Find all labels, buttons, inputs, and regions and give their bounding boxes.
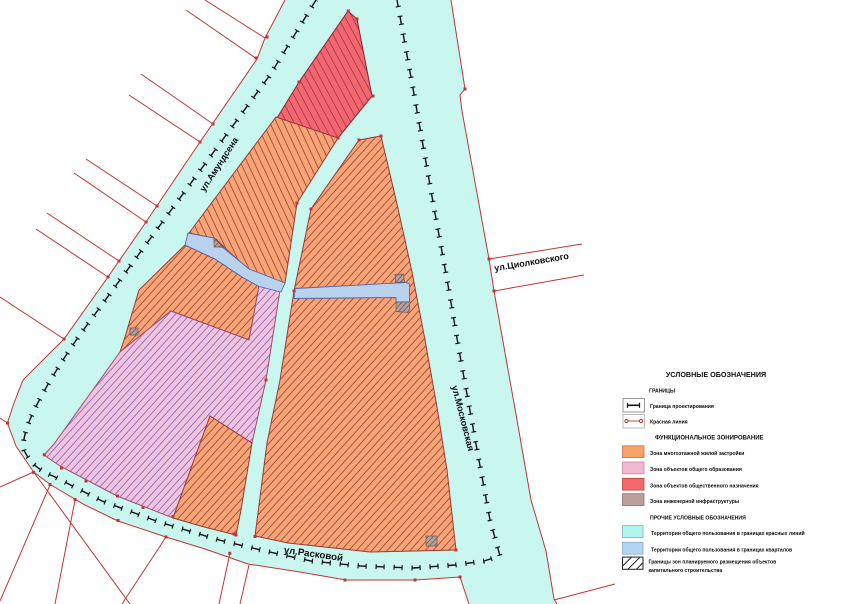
svg-text:Граница проектирования: Граница проектирования [650,404,714,410]
svg-text:Границы зон планируемого разме: Границы зон планируемого размещения объе… [649,559,777,566]
svg-text:УСЛОВНЫЕ ОБОЗНАЧЕНИЯ: УСЛОВНЫЕ ОБОЗНАЧЕНИЯ [666,370,766,379]
svg-text:Территории общего пользования: Территории общего пользования в границах… [651,530,805,537]
svg-text:капитального строительства: капитального строительства [649,568,723,574]
svg-text:ПРОЧИЕ УСЛОВНЫЕ ОБОЗНАЧЕНИЯ: ПРОЧИЕ УСЛОВНЫЕ ОБОЗНАЧЕНИЯ [650,516,746,522]
svg-text:ФУНКЦИОНАЛЬНОЕ ЗОНИРОВАНИЕ: ФУНКЦИОНАЛЬНОЕ ЗОНИРОВАНИЕ [655,436,764,442]
svg-text:ГРАНИЦЫ: ГРАНИЦЫ [649,389,675,395]
svg-text:Территории общего пользования: Территории общего пользования в границах… [651,547,792,554]
svg-text:Красная линия: Красная линия [650,420,688,426]
svg-text:Зона инженерной инфраструктуры: Зона инженерной инфраструктуры [650,498,739,505]
svg-text:Зона объектов общего образован: Зона объектов общего образования [650,466,742,473]
svg-text:Зона объектов общественного на: Зона объектов общественного назначения [650,483,759,490]
svg-text:Зона многоэтажной жилой застро: Зона многоэтажной жилой застройки [650,450,744,457]
